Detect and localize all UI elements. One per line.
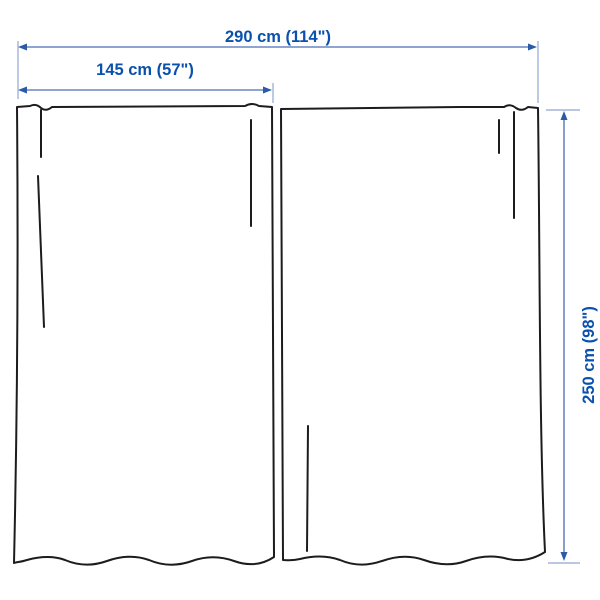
- arrow-down-icon: [561, 552, 568, 561]
- panel-width-dimension: [18, 83, 273, 103]
- left-curtain-panel: [14, 104, 274, 565]
- curtain-dimension-diagram: 290 cm (114") 145 cm (57") 250 cm (98"): [0, 0, 600, 600]
- arrow-up-icon: [561, 111, 568, 120]
- arrow-right-icon: [528, 44, 537, 51]
- arrow-left-icon: [18, 87, 27, 94]
- panel-height-label: 250 cm (98"): [579, 275, 599, 435]
- right-curtain-panel: [281, 105, 545, 564]
- right-panel-outline: [281, 105, 545, 564]
- diagram-canvas: [0, 0, 600, 600]
- total-width-label: 290 cm (114"): [178, 27, 378, 47]
- arrow-left-icon: [18, 44, 27, 51]
- left-panel-outline: [14, 104, 274, 565]
- panel-width-label: 145 cm (57"): [45, 60, 245, 80]
- panel-height-dimension: [546, 110, 580, 563]
- right-panel-fold-line-bottom: [307, 426, 308, 551]
- arrow-right-icon: [263, 87, 272, 94]
